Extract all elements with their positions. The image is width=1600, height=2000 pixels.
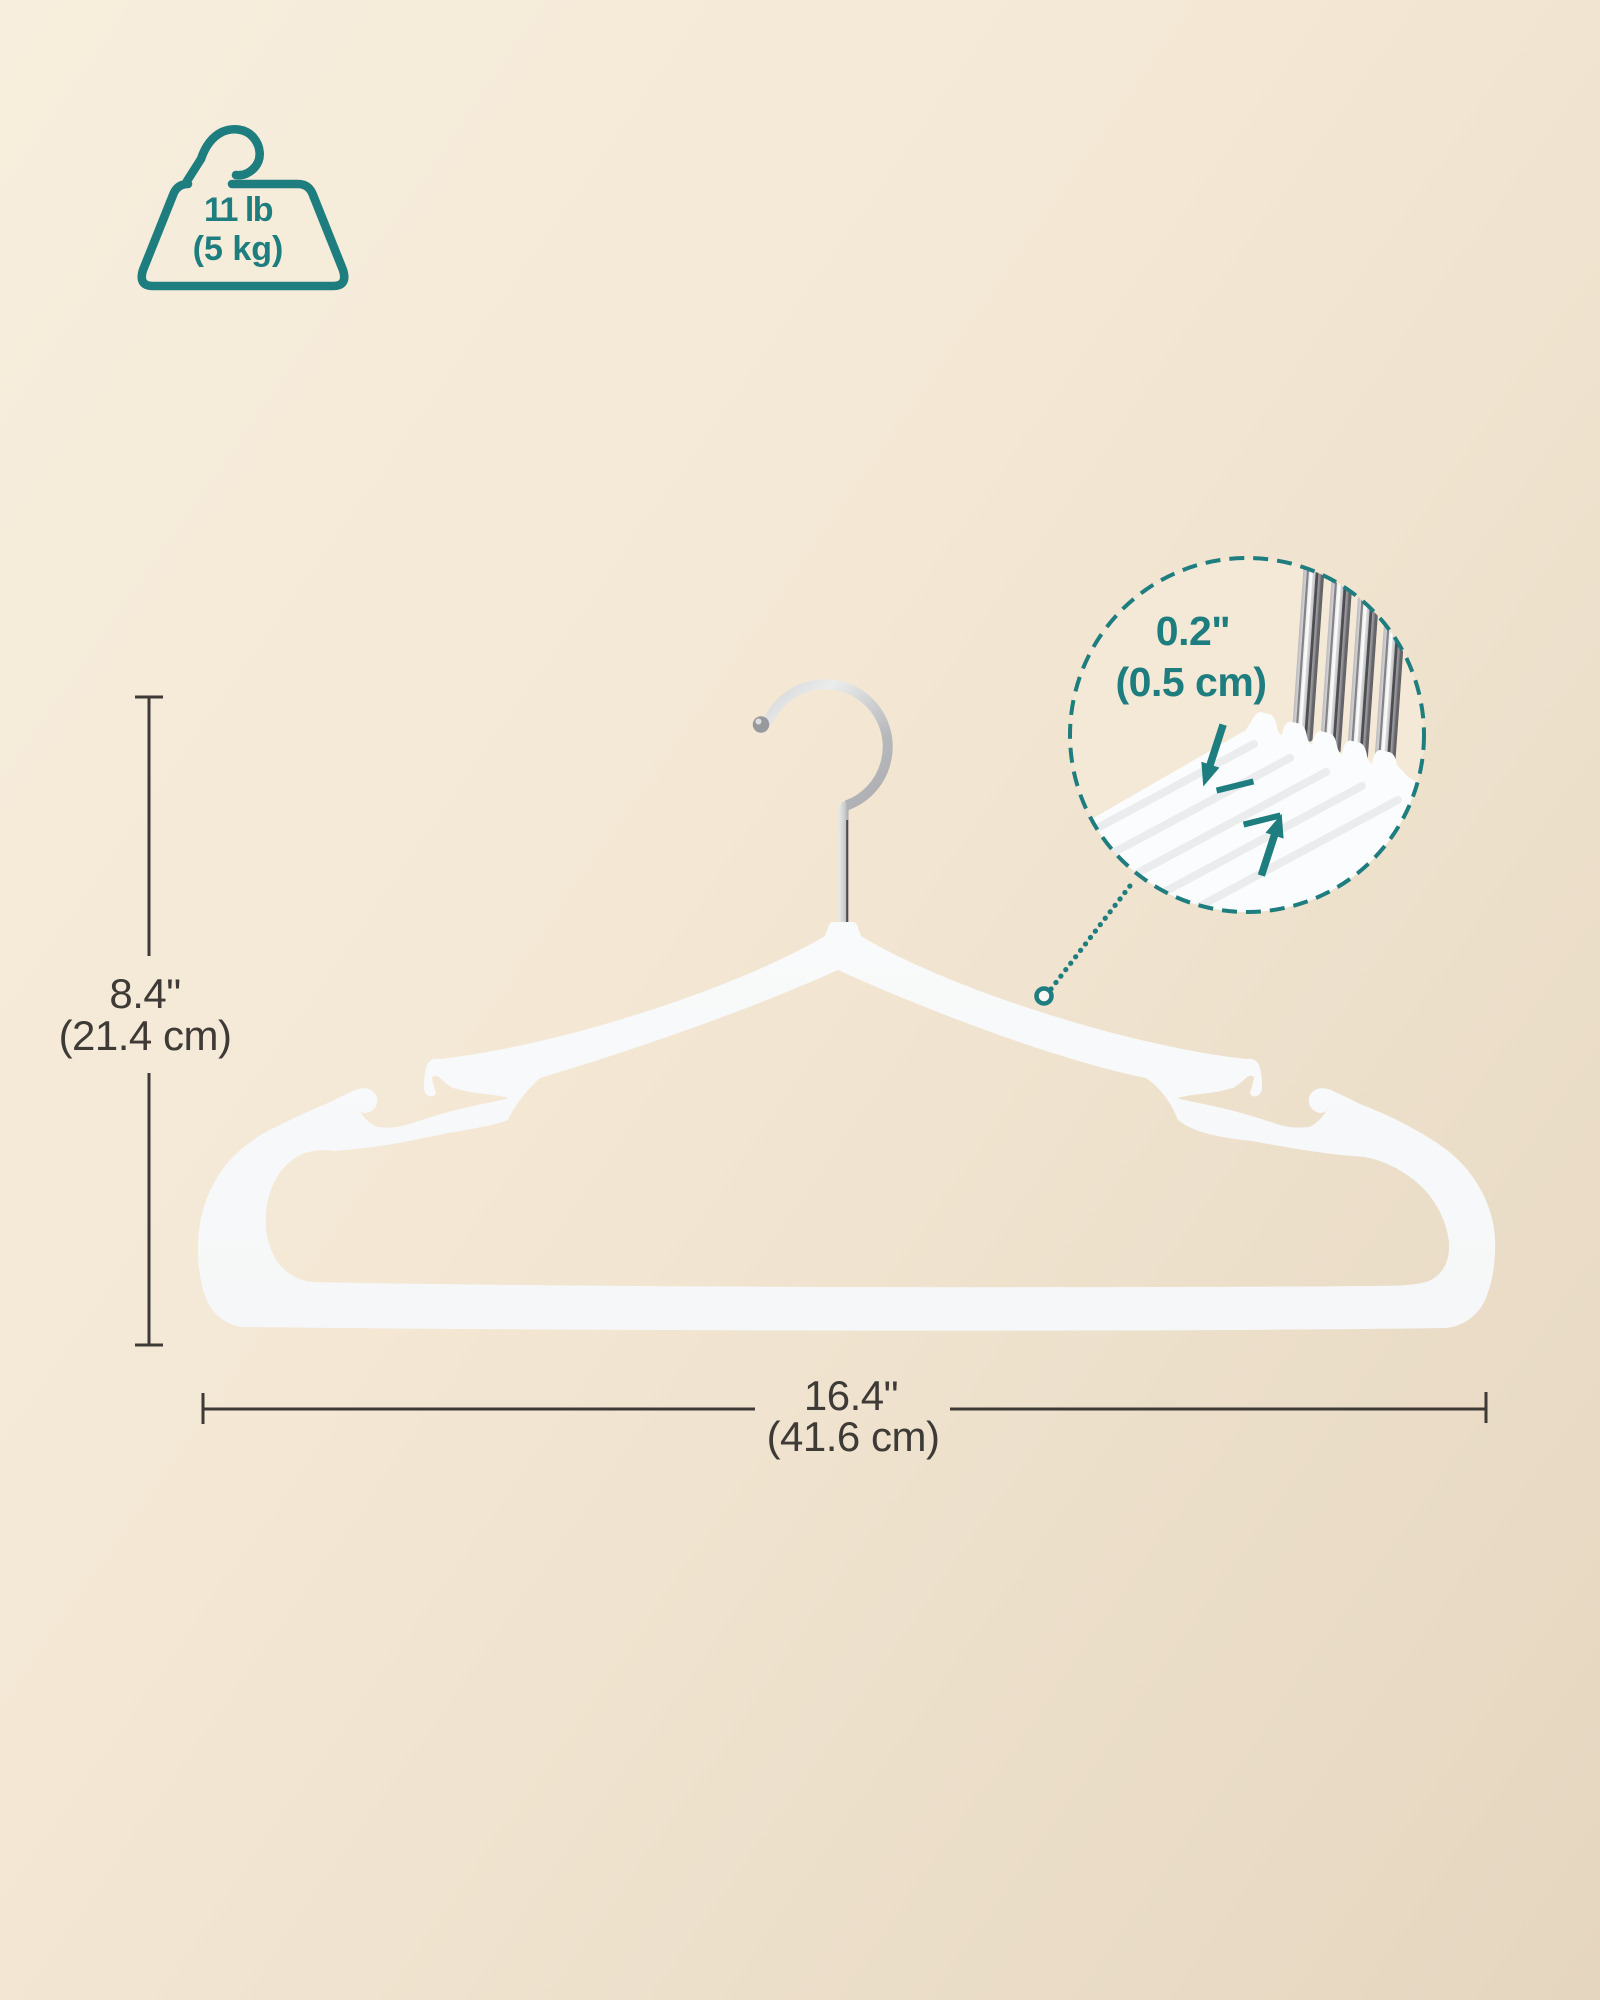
svg-text:(41.6 cm): (41.6 cm): [767, 1413, 940, 1460]
svg-text:16.4": 16.4": [804, 1372, 898, 1419]
svg-text:0.2": 0.2": [1156, 608, 1230, 654]
svg-text:8.4": 8.4": [109, 970, 180, 1017]
svg-text:(21.4 cm): (21.4 cm): [59, 1012, 232, 1059]
svg-text:(0.5 cm): (0.5 cm): [1116, 659, 1267, 705]
svg-text:(5 kg): (5 kg): [193, 230, 284, 268]
svg-text:11 lb: 11 lb: [204, 191, 273, 229]
